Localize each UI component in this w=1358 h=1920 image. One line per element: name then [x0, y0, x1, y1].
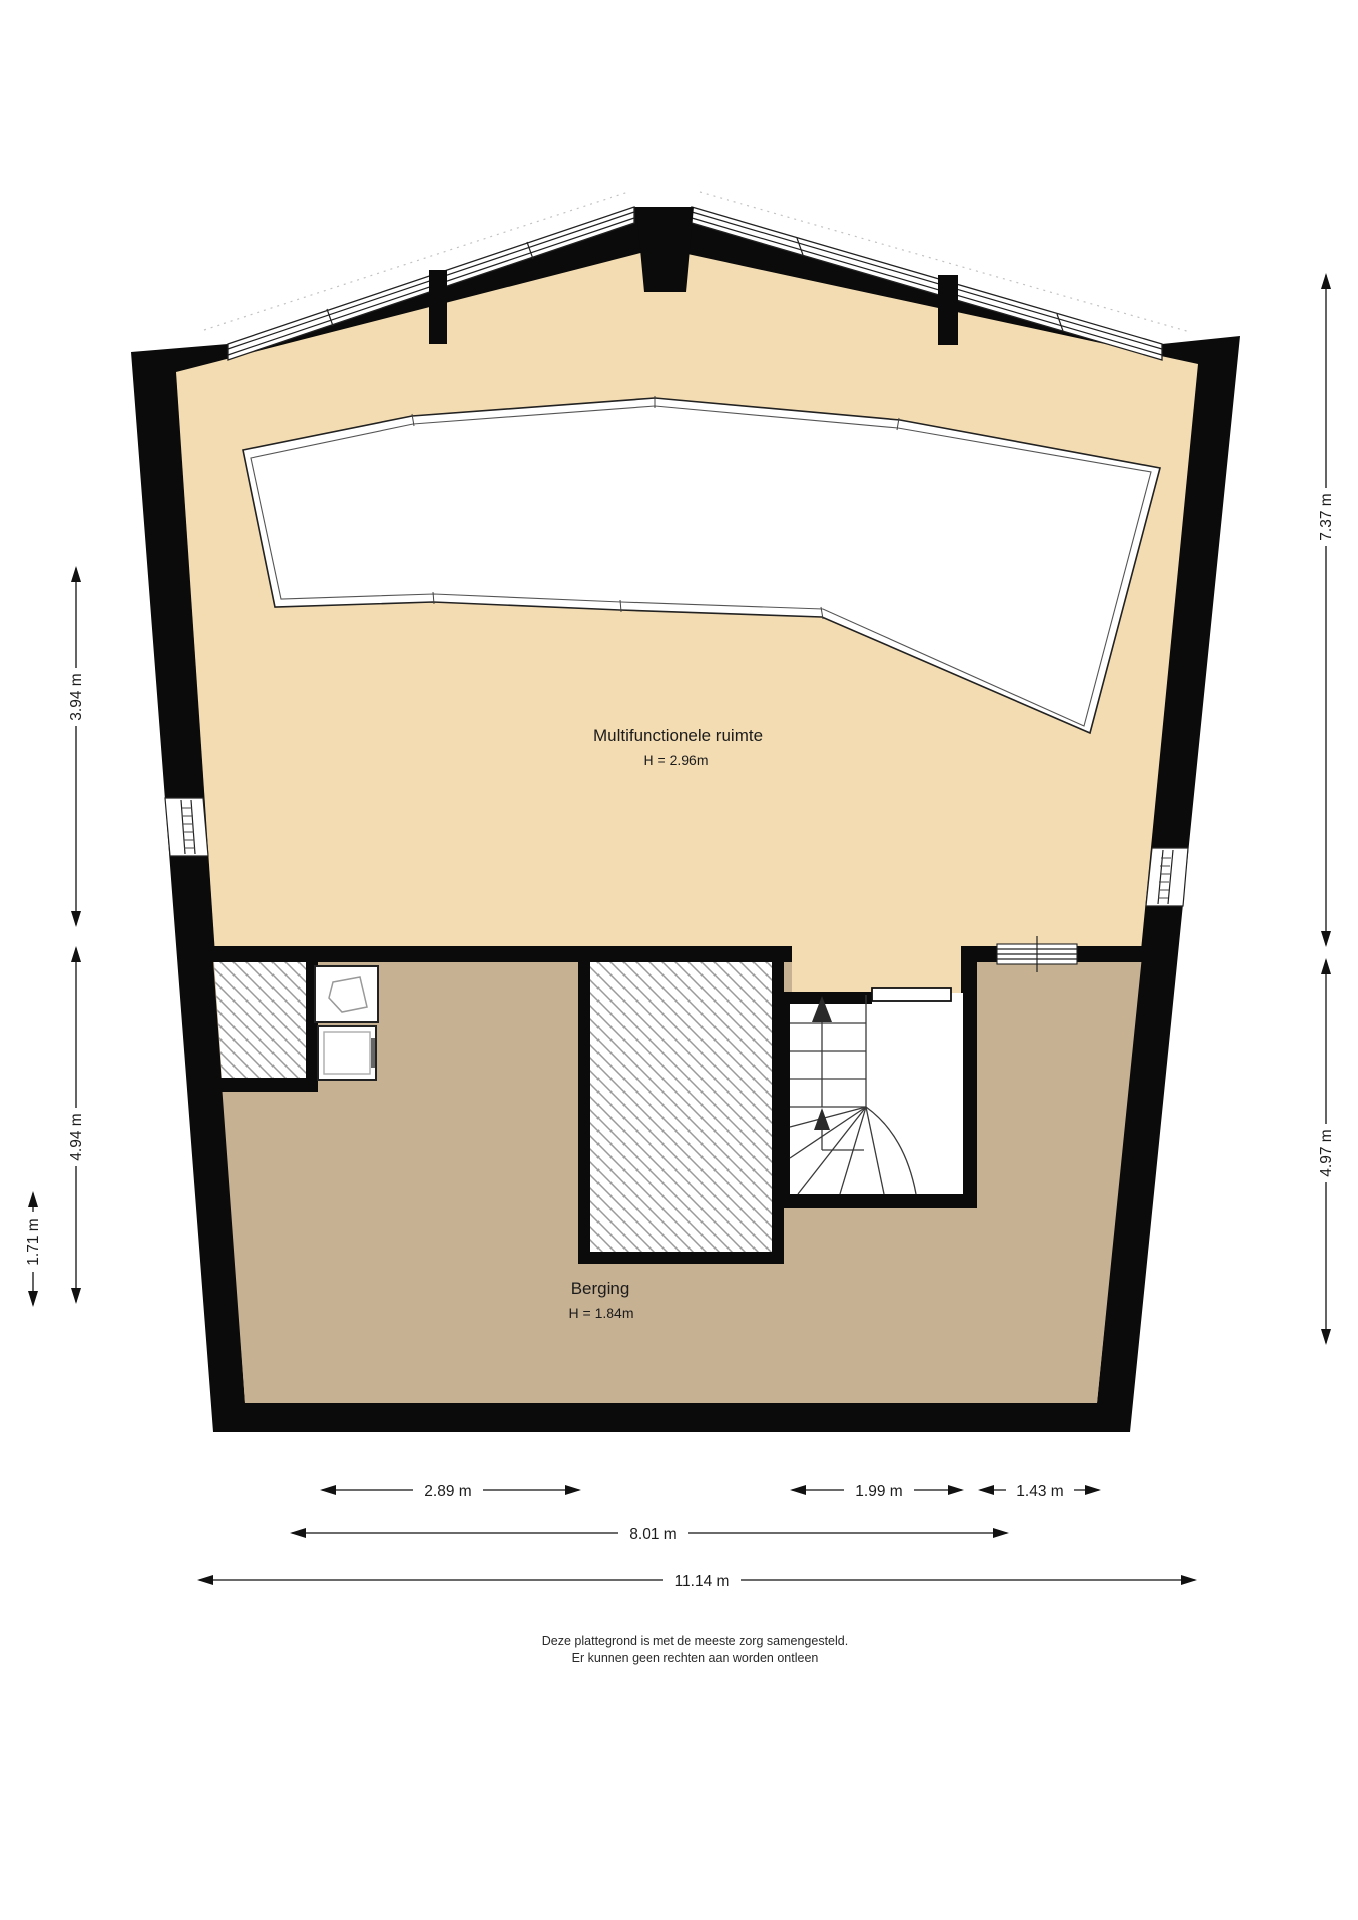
dimension-left-lower: 4.94 m [68, 946, 85, 1304]
room-name-multifunctional: Multifunctionele ruimte [593, 726, 763, 745]
floorplan-drawing: Multifunctionele ruimte H = 2.96m Bergin… [0, 0, 1358, 1920]
stair-right-wall [961, 946, 977, 1208]
dim-left-upper-label: 3.94 m [68, 673, 85, 720]
dim-bottom-mid-label: 1.99 m [855, 1483, 902, 1500]
dimension-right-upper: 7.37 m [1318, 273, 1335, 947]
dimension-left-upper: 3.94 m [68, 566, 85, 927]
stairs [776, 988, 977, 1208]
footer-line-1: Deze plattegrond is met de meeste zorg s… [542, 1634, 848, 1648]
dim-bottom-total-label: 11.14 m [675, 1573, 730, 1590]
washer-fixture [318, 1026, 376, 1080]
roof-post-right [938, 275, 958, 345]
dimension-left-inner: 1.71 m [25, 1191, 42, 1307]
dimension-bottom-left: 2.89 m [320, 1483, 581, 1500]
wall-window-right [1146, 848, 1188, 906]
dim-right-upper-label: 7.37 m [1318, 493, 1335, 540]
dimension-bottom-mid: 1.99 m [790, 1483, 964, 1500]
room-name-storage: Berging [571, 1279, 630, 1298]
footer-disclaimer: Deze plattegrond is met de meeste zorg s… [542, 1634, 848, 1665]
dim-bottom-right-label: 1.43 m [1016, 1483, 1063, 1500]
sink-fixture [315, 966, 378, 1022]
dim-bottom-left-label: 2.89 m [424, 1483, 471, 1500]
dim-left-inner-label: 1.71 m [25, 1218, 42, 1265]
hatch-area-left [214, 962, 318, 1092]
door-leaf [872, 988, 951, 1001]
ridge-block [636, 207, 694, 292]
dimension-bottom-right: 1.43 m [978, 1483, 1101, 1500]
footer-line-2: Er kunnen geen rechten aan worden ontlee… [572, 1651, 819, 1665]
room-height-multifunctional: H = 2.96m [644, 752, 709, 768]
dim-bottom-span-label: 8.01 m [629, 1526, 676, 1543]
dimension-bottom-total: 11.14 m [197, 1573, 1197, 1590]
floorplan-page: Multifunctionele ruimte H = 2.96m Bergin… [0, 0, 1358, 1920]
dim-right-lower-label: 4.97 m [1318, 1129, 1335, 1176]
wall-window-left [165, 798, 208, 856]
dim-left-lower-label: 4.94 m [68, 1113, 85, 1160]
roof-post-left [429, 270, 447, 344]
hatch-area-central [578, 951, 784, 1264]
room-height-storage: H = 1.84m [569, 1305, 634, 1321]
dimension-bottom-span: 8.01 m [290, 1526, 1009, 1543]
dimension-right-lower: 4.97 m [1318, 958, 1335, 1345]
